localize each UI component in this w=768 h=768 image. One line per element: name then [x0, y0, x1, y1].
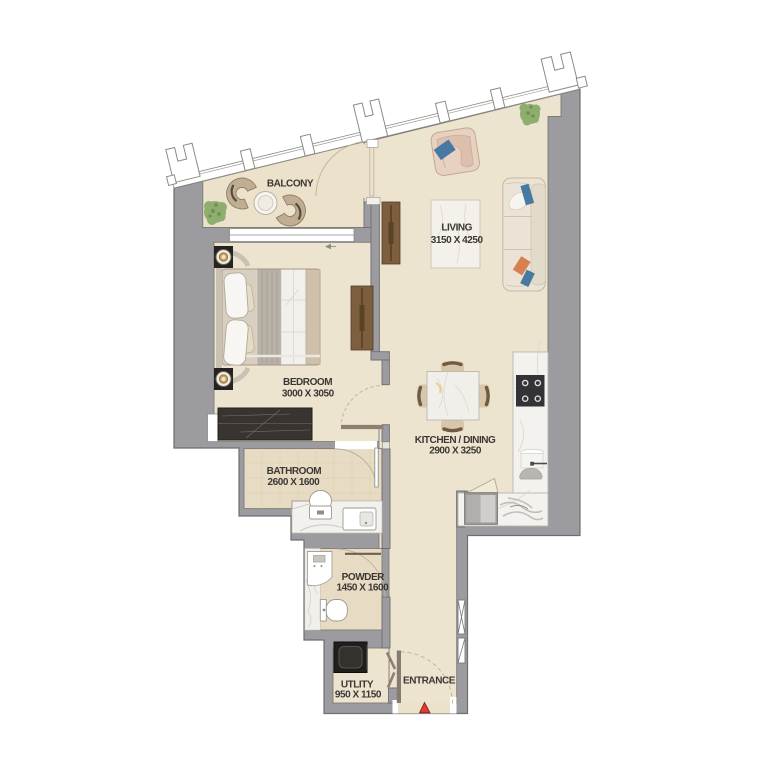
svg-text:1450 X 1600: 1450 X 1600	[337, 583, 390, 594]
svg-text:BEDROOM: BEDROOM	[283, 377, 332, 388]
svg-text:950 X 1150: 950 X 1150	[335, 689, 382, 700]
svg-text:3000 X 3050: 3000 X 3050	[282, 388, 335, 399]
svg-text:POWDER: POWDER	[342, 572, 386, 583]
svg-text:LIVING: LIVING	[441, 222, 472, 233]
svg-text:3150 X 4250: 3150 X 4250	[431, 235, 484, 246]
svg-text:2900 X 3250: 2900 X 3250	[429, 445, 482, 456]
svg-text:ENTRANCE: ENTRANCE	[403, 676, 456, 687]
svg-text:2600 X 1600: 2600 X 1600	[268, 477, 321, 488]
svg-text:BATHROOM: BATHROOM	[267, 466, 322, 477]
svg-text:KITCHEN / DINING: KITCHEN / DINING	[415, 435, 496, 446]
svg-text:BALCONY: BALCONY	[267, 179, 314, 190]
